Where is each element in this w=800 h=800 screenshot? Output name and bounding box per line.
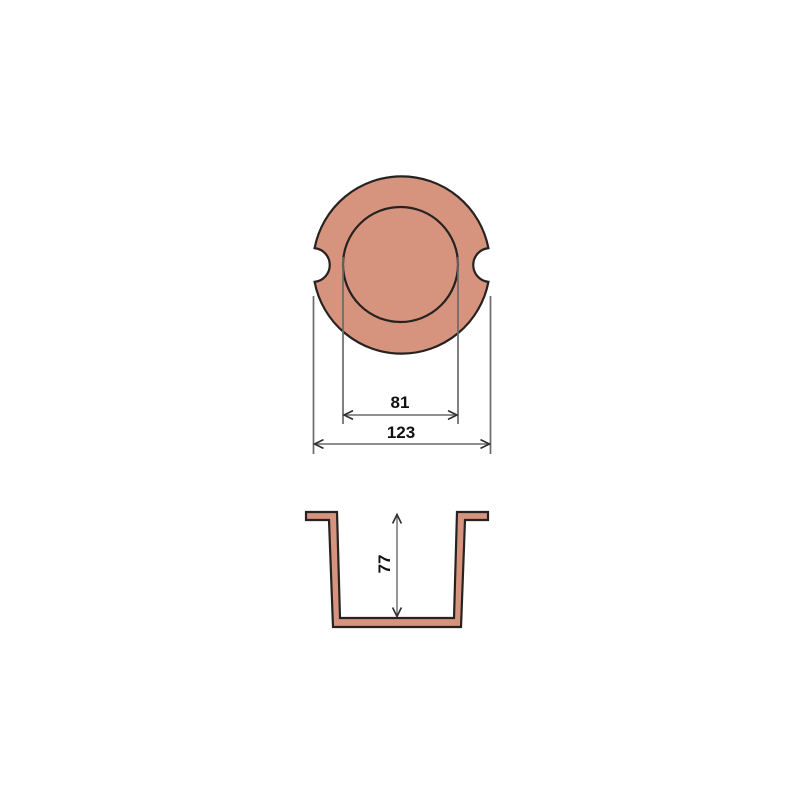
- side-view: 77: [306, 512, 488, 627]
- dimension-height: 77: [375, 515, 401, 617]
- dim-label-81: 81: [391, 393, 410, 412]
- technical-drawing: 81 123 77: [0, 0, 800, 800]
- dim-label-123: 123: [387, 423, 415, 442]
- top-view: 81 123: [314, 176, 491, 454]
- drawing-canvas: 81 123 77: [0, 0, 800, 800]
- dimension-inner-diameter: 81: [344, 393, 457, 419]
- dim-label-77: 77: [375, 555, 394, 574]
- grommet-top-outline: [315, 176, 489, 353]
- dimension-outer-diameter: 123: [315, 423, 490, 448]
